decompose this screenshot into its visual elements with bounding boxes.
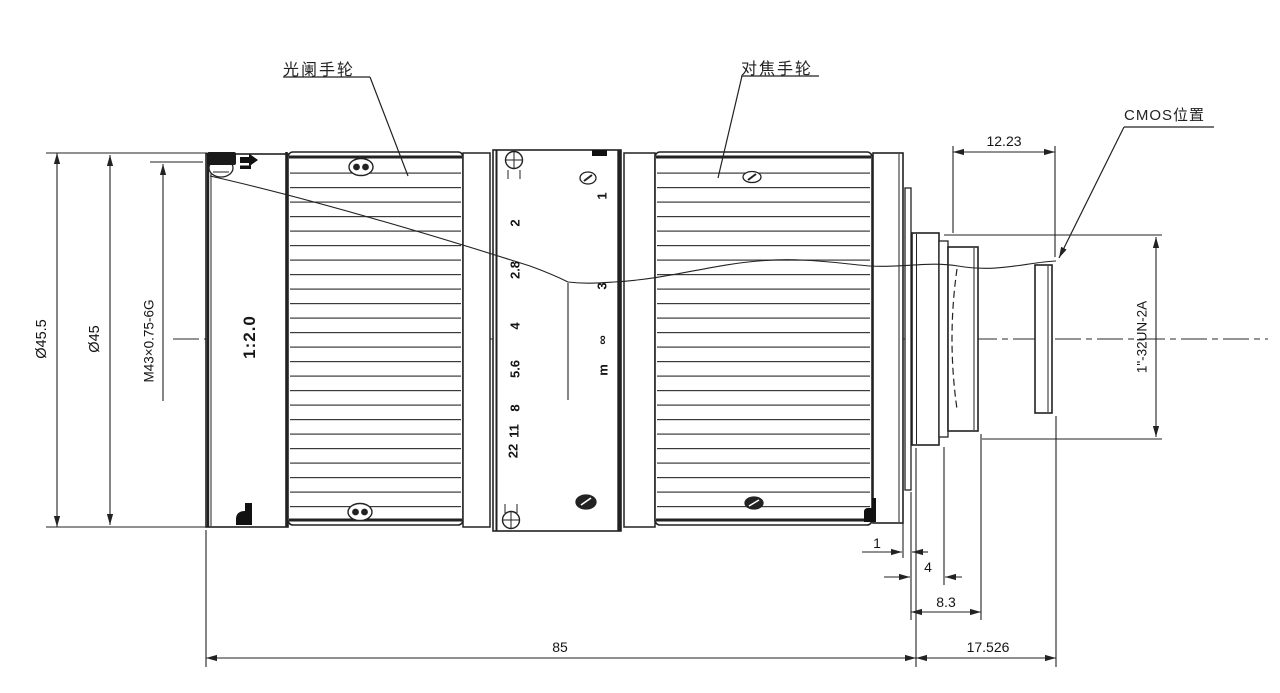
dim-label-outer-diameter: Ø45.5 bbox=[34, 319, 50, 359]
aperture-scale-5-6: 5.6 bbox=[508, 360, 523, 378]
focus-handwheel bbox=[655, 152, 872, 525]
dim-label-barrel-diameter: Ø45 bbox=[87, 325, 103, 352]
lens-technical-drawing: 光阑手轮 对焦手轮 CMOS位置 Ø45.5 Ø45 M43×0.75-6G 1… bbox=[0, 0, 1280, 693]
cmos-plane-plate bbox=[1035, 265, 1052, 413]
rear-ring bbox=[873, 153, 903, 523]
callout-cmos-position: CMOS位置 bbox=[1124, 104, 1205, 125]
marking-aperture-ratio: 1:2.0 bbox=[240, 315, 260, 359]
aperture-handwheel bbox=[288, 152, 463, 525]
callout-aperture-wheel: 光阑手轮 bbox=[283, 56, 355, 80]
front-knurled-screw bbox=[207, 152, 236, 177]
focus-scale-1: 1 bbox=[595, 192, 610, 199]
focus-scale-3: 3 bbox=[595, 282, 610, 289]
index-mark bbox=[592, 150, 607, 156]
spacer-ring-1 bbox=[463, 153, 490, 527]
aperture-scale-8: 8 bbox=[508, 404, 523, 411]
dim-label-step: 4 bbox=[924, 559, 932, 575]
spacer-ring-2 bbox=[624, 153, 655, 527]
dim-label-mount-thread: 1"-32UN-2A bbox=[1135, 301, 1150, 373]
aperture-scale-2: 2 bbox=[508, 219, 523, 226]
focus-scale-unit: m bbox=[596, 364, 611, 376]
dim-label-body-length: 85 bbox=[552, 639, 568, 655]
rear-mount bbox=[905, 188, 978, 490]
aperture-scale-11: 11 bbox=[507, 424, 522, 438]
focus-scale-infinity: ∞ bbox=[595, 335, 610, 344]
dim-label-mount-length: 8.3 bbox=[936, 594, 955, 610]
aperture-scale-4: 4 bbox=[508, 322, 523, 329]
dim-label-cmos-offset: 12.23 bbox=[986, 133, 1021, 149]
aperture-scale-22: 22 bbox=[506, 444, 521, 458]
dim-label-gap: 1 bbox=[873, 535, 881, 551]
aperture-scale-2-8: 2.8 bbox=[508, 261, 523, 279]
drawing-lines bbox=[0, 0, 1280, 693]
dim-label-rear-length: 17.526 bbox=[967, 639, 1010, 655]
dim-label-front-thread: M43×0.75-6G bbox=[142, 300, 157, 383]
callout-focus-wheel: 对焦手轮 bbox=[741, 55, 813, 79]
